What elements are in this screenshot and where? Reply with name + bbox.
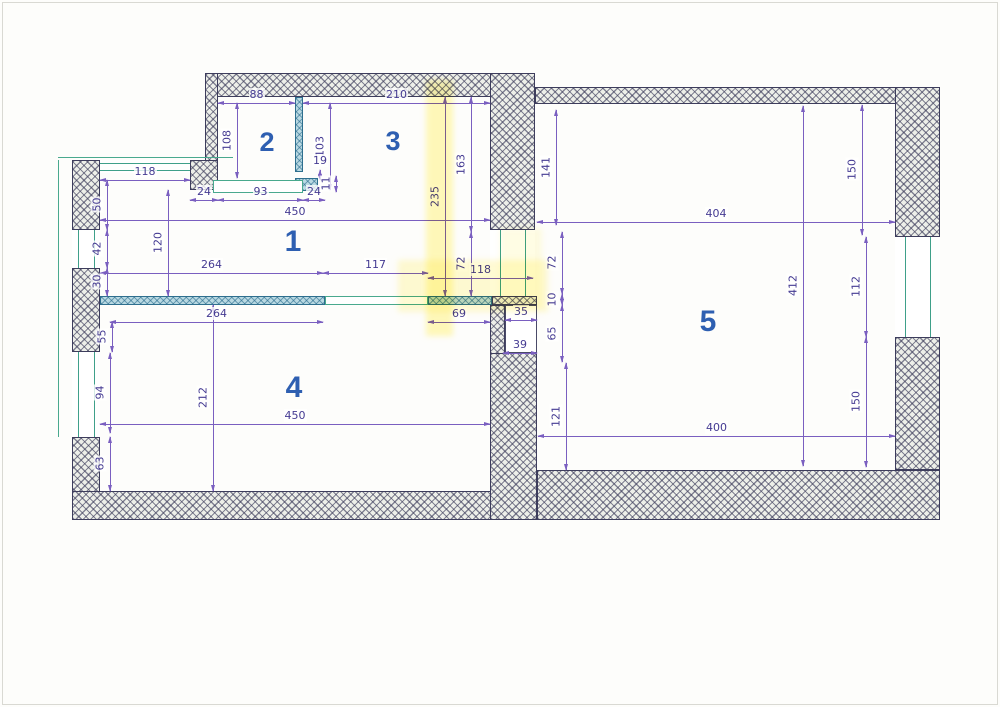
window-sill	[325, 296, 428, 305]
room-label-5: 5	[693, 304, 723, 340]
window-frame-line	[905, 237, 906, 337]
dimension-line-39	[503, 353, 537, 354]
dimension-value: 88	[240, 88, 274, 101]
wall-segment	[492, 296, 537, 305]
dimension-value: 35	[504, 305, 538, 318]
partition-wall-segment	[295, 97, 303, 172]
dimension-line-72	[562, 232, 563, 294]
dimension-value: 412	[787, 269, 800, 303]
window-frame-line	[500, 230, 501, 296]
dimension-value: 30	[91, 265, 104, 299]
dimension-value: 118	[464, 263, 498, 276]
dimension-value: 50	[91, 188, 104, 222]
dimension-line-235	[445, 97, 446, 296]
wall-segment	[537, 470, 940, 520]
window-frame-line	[78, 352, 79, 437]
dimension-value: 42	[91, 232, 104, 266]
window-frame-line	[930, 237, 931, 337]
dimension-value: 65	[546, 316, 559, 350]
dimension-line-35	[505, 320, 537, 321]
dimension-line-450	[100, 220, 490, 221]
dimension-value: 121	[550, 399, 563, 433]
dimension-value: 93	[244, 185, 278, 198]
dimension-value: 212	[197, 381, 210, 415]
dimension-line-150	[866, 337, 867, 467]
dimension-line-117	[323, 273, 428, 274]
dimension-value: 24	[187, 185, 221, 198]
dimension-value: 400	[700, 421, 734, 434]
dimension-line-112	[866, 237, 867, 337]
dimension-value: 264	[195, 258, 229, 271]
dimension-value: 150	[850, 385, 863, 419]
dimension-line-150	[862, 105, 863, 235]
dimension-line-42	[107, 230, 108, 268]
dimension-value: 69	[442, 307, 476, 320]
dimension-line-264	[110, 322, 323, 323]
dimension-line-63	[110, 437, 111, 491]
dimension-value: 19	[303, 154, 337, 167]
dimension-value: 11	[320, 167, 333, 201]
window-frame-line	[100, 163, 190, 164]
dimension-value: 72	[546, 246, 559, 280]
dimension-value: 63	[94, 447, 107, 481]
dimension-value: 108	[221, 123, 234, 157]
wall-segment	[490, 73, 535, 230]
window-opening	[895, 237, 940, 337]
room-label-4: 4	[279, 370, 309, 406]
exterior-contour-line	[58, 160, 59, 437]
dimension-value: 210	[380, 88, 414, 101]
dimension-line-11	[336, 176, 337, 192]
dimension-value: 112	[850, 270, 863, 304]
floor-plan-drawing: 8821011824932445026411711840426469353945…	[0, 0, 1000, 707]
dimension-line-121	[566, 363, 567, 470]
dimension-value: 118	[128, 165, 162, 178]
window-frame-line	[525, 230, 526, 296]
dimension-line-118	[100, 180, 190, 181]
window-frame-line	[78, 230, 79, 268]
dimension-line-69	[428, 322, 490, 323]
dimension-line-94	[110, 353, 111, 433]
wall-segment	[72, 491, 537, 520]
dimension-line-400	[538, 436, 895, 437]
dimension-value: 264	[200, 307, 234, 320]
dimension-line-450	[100, 424, 490, 425]
wall-segment	[895, 337, 940, 470]
dimension-value: 39	[503, 338, 537, 351]
wall-segment	[895, 87, 940, 237]
partition-wall-segment	[428, 296, 492, 305]
room-label-2: 2	[252, 124, 282, 160]
dimension-value: 120	[152, 226, 165, 260]
dimension-line-30	[107, 268, 108, 296]
dimension-line-55	[112, 322, 113, 352]
dimension-line-212	[213, 305, 214, 491]
room-label-1: 1	[278, 224, 308, 260]
dimension-value: 117	[359, 258, 393, 271]
dimension-value: 404	[699, 207, 733, 220]
dimension-line-50	[107, 180, 108, 230]
dimension-value: 10	[546, 282, 559, 316]
dimension-value: 235	[429, 179, 442, 213]
exterior-contour-line	[58, 157, 233, 158]
wall-segment	[490, 353, 537, 520]
dimension-value: 141	[540, 150, 553, 184]
dimension-line-93	[218, 200, 303, 201]
room-label-3: 3	[378, 123, 408, 159]
dimension-value: 94	[94, 376, 107, 410]
dimension-line-24	[190, 200, 218, 201]
dimension-value: 450	[278, 409, 312, 422]
dimension-value: 72	[455, 247, 468, 281]
dimension-value: 450	[278, 205, 312, 218]
dimension-line-108	[237, 103, 238, 178]
dimension-line-120	[168, 190, 169, 296]
dimension-line-163	[471, 97, 472, 232]
dimension-line-118	[428, 278, 533, 279]
dimension-line-412	[803, 106, 804, 466]
dimension-line-404	[537, 222, 895, 223]
dimension-value: 55	[96, 320, 109, 354]
dimension-line-88	[218, 103, 295, 104]
dimension-value: 150	[846, 153, 859, 187]
dimension-line-65	[562, 305, 563, 362]
dimension-value: 163	[455, 147, 468, 181]
wall-segment	[535, 87, 940, 104]
dimension-line-264	[100, 273, 323, 274]
dimension-line-141	[556, 110, 557, 225]
